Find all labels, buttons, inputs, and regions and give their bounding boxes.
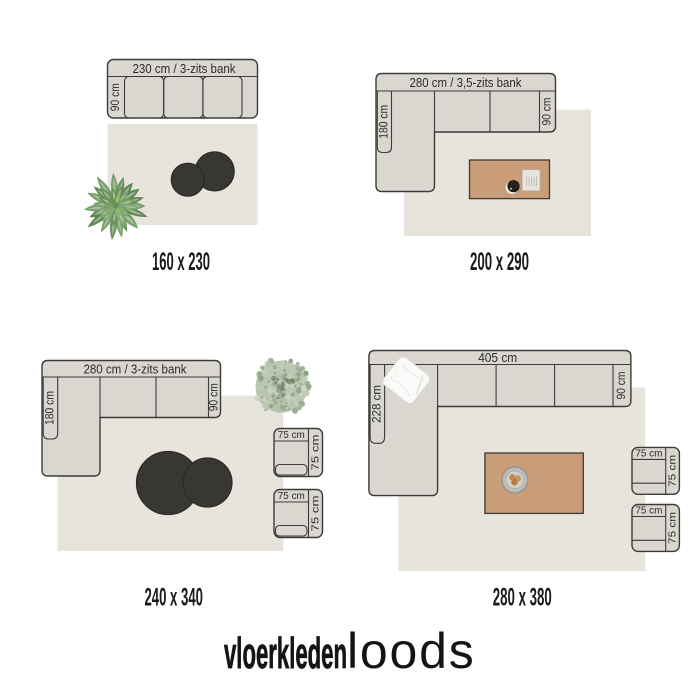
svg-text:280 x 380: 280 x 380 — [493, 584, 552, 612]
svg-text:180 cm: 180 cm — [378, 105, 390, 139]
svg-text:75 cm: 75 cm — [667, 512, 679, 544]
svg-text:75 cm: 75 cm — [667, 455, 679, 487]
svg-text:75 cm: 75 cm — [278, 490, 305, 502]
svg-text:90 cm: 90 cm — [209, 383, 221, 411]
svg-text:90 cm: 90 cm — [110, 83, 122, 111]
svg-text:230 cm / 3-zits bank: 230 cm / 3-zits bank — [133, 61, 236, 76]
svg-text:75 cm: 75 cm — [310, 495, 322, 531]
svg-text:75 cm: 75 cm — [310, 434, 322, 470]
svg-text:90 cm: 90 cm — [542, 98, 554, 126]
svg-text:228 cm: 228 cm — [371, 385, 383, 423]
svg-text:200 x 290: 200 x 290 — [470, 248, 529, 276]
svg-text:loods: loods — [347, 623, 476, 679]
svg-text:280 cm / 3-zits bank: 280 cm / 3-zits bank — [84, 362, 187, 377]
svg-text:405 cm: 405 cm — [478, 350, 517, 365]
svg-text:75 cm: 75 cm — [635, 505, 662, 517]
svg-text:280 cm / 3,5-zits bank: 280 cm / 3,5-zits bank — [410, 75, 522, 90]
svg-text:75 cm: 75 cm — [635, 447, 662, 459]
svg-text:vloerkleden: vloerkleden — [224, 629, 347, 678]
svg-text:180 cm: 180 cm — [45, 391, 57, 425]
svg-text:240 x 340: 240 x 340 — [144, 584, 203, 612]
svg-text:90 cm: 90 cm — [616, 372, 628, 400]
svg-text:160 x 230: 160 x 230 — [152, 248, 210, 276]
svg-text:75 cm: 75 cm — [278, 429, 305, 441]
